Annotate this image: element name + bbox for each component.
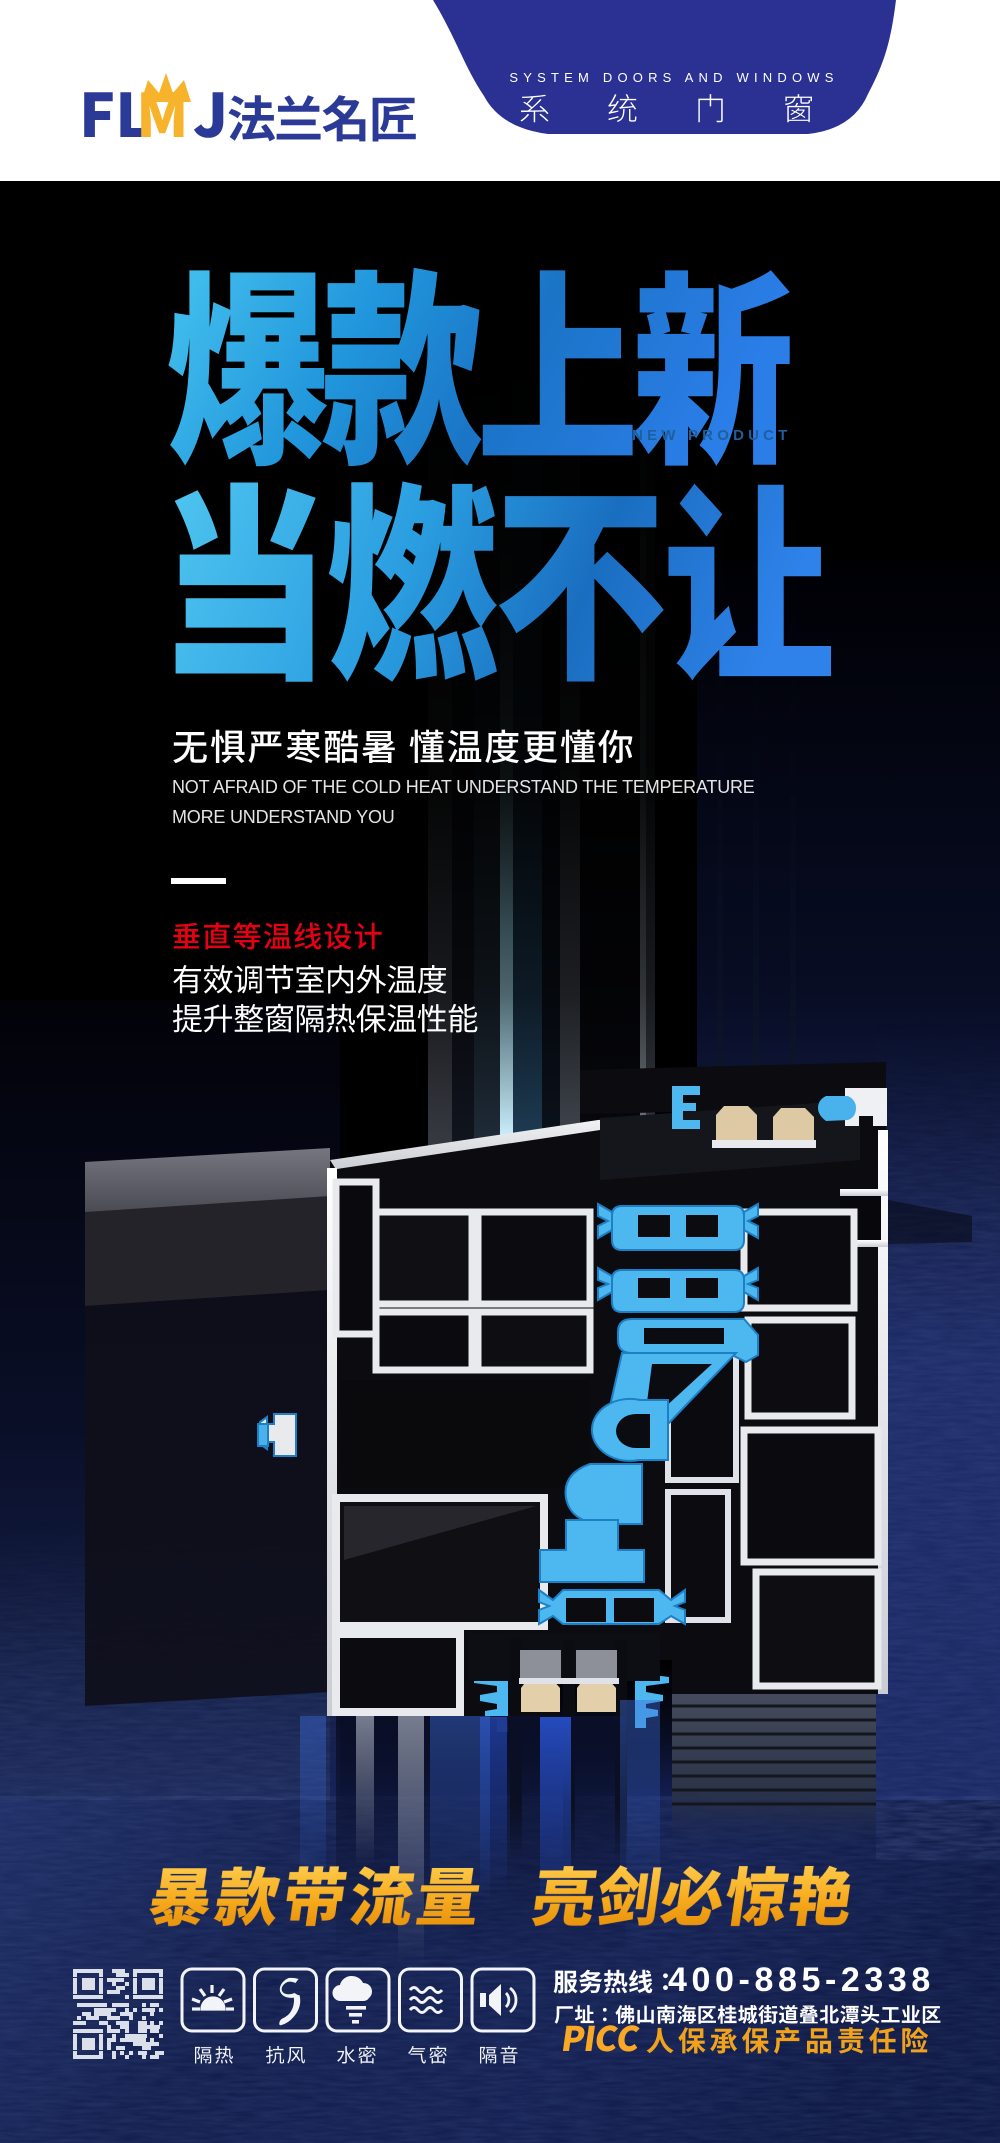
svg-text:SYSTEM DOORS AND WINDOWS: SYSTEM DOORS AND WINDOWS [509,70,838,85]
svg-text:NEW PRODUCT: NEW PRODUCT [632,427,792,444]
svg-text:NOT AFRAID OF THE COLD HEAT UN: NOT AFRAID OF THE COLD HEAT UNDERSTAND T… [172,777,755,797]
svg-text:MORE UNDERSTAND YOU: MORE UNDERSTAND YOU [172,807,395,827]
svg-text:400-885-2338: 400-885-2338 [668,1961,935,1999]
